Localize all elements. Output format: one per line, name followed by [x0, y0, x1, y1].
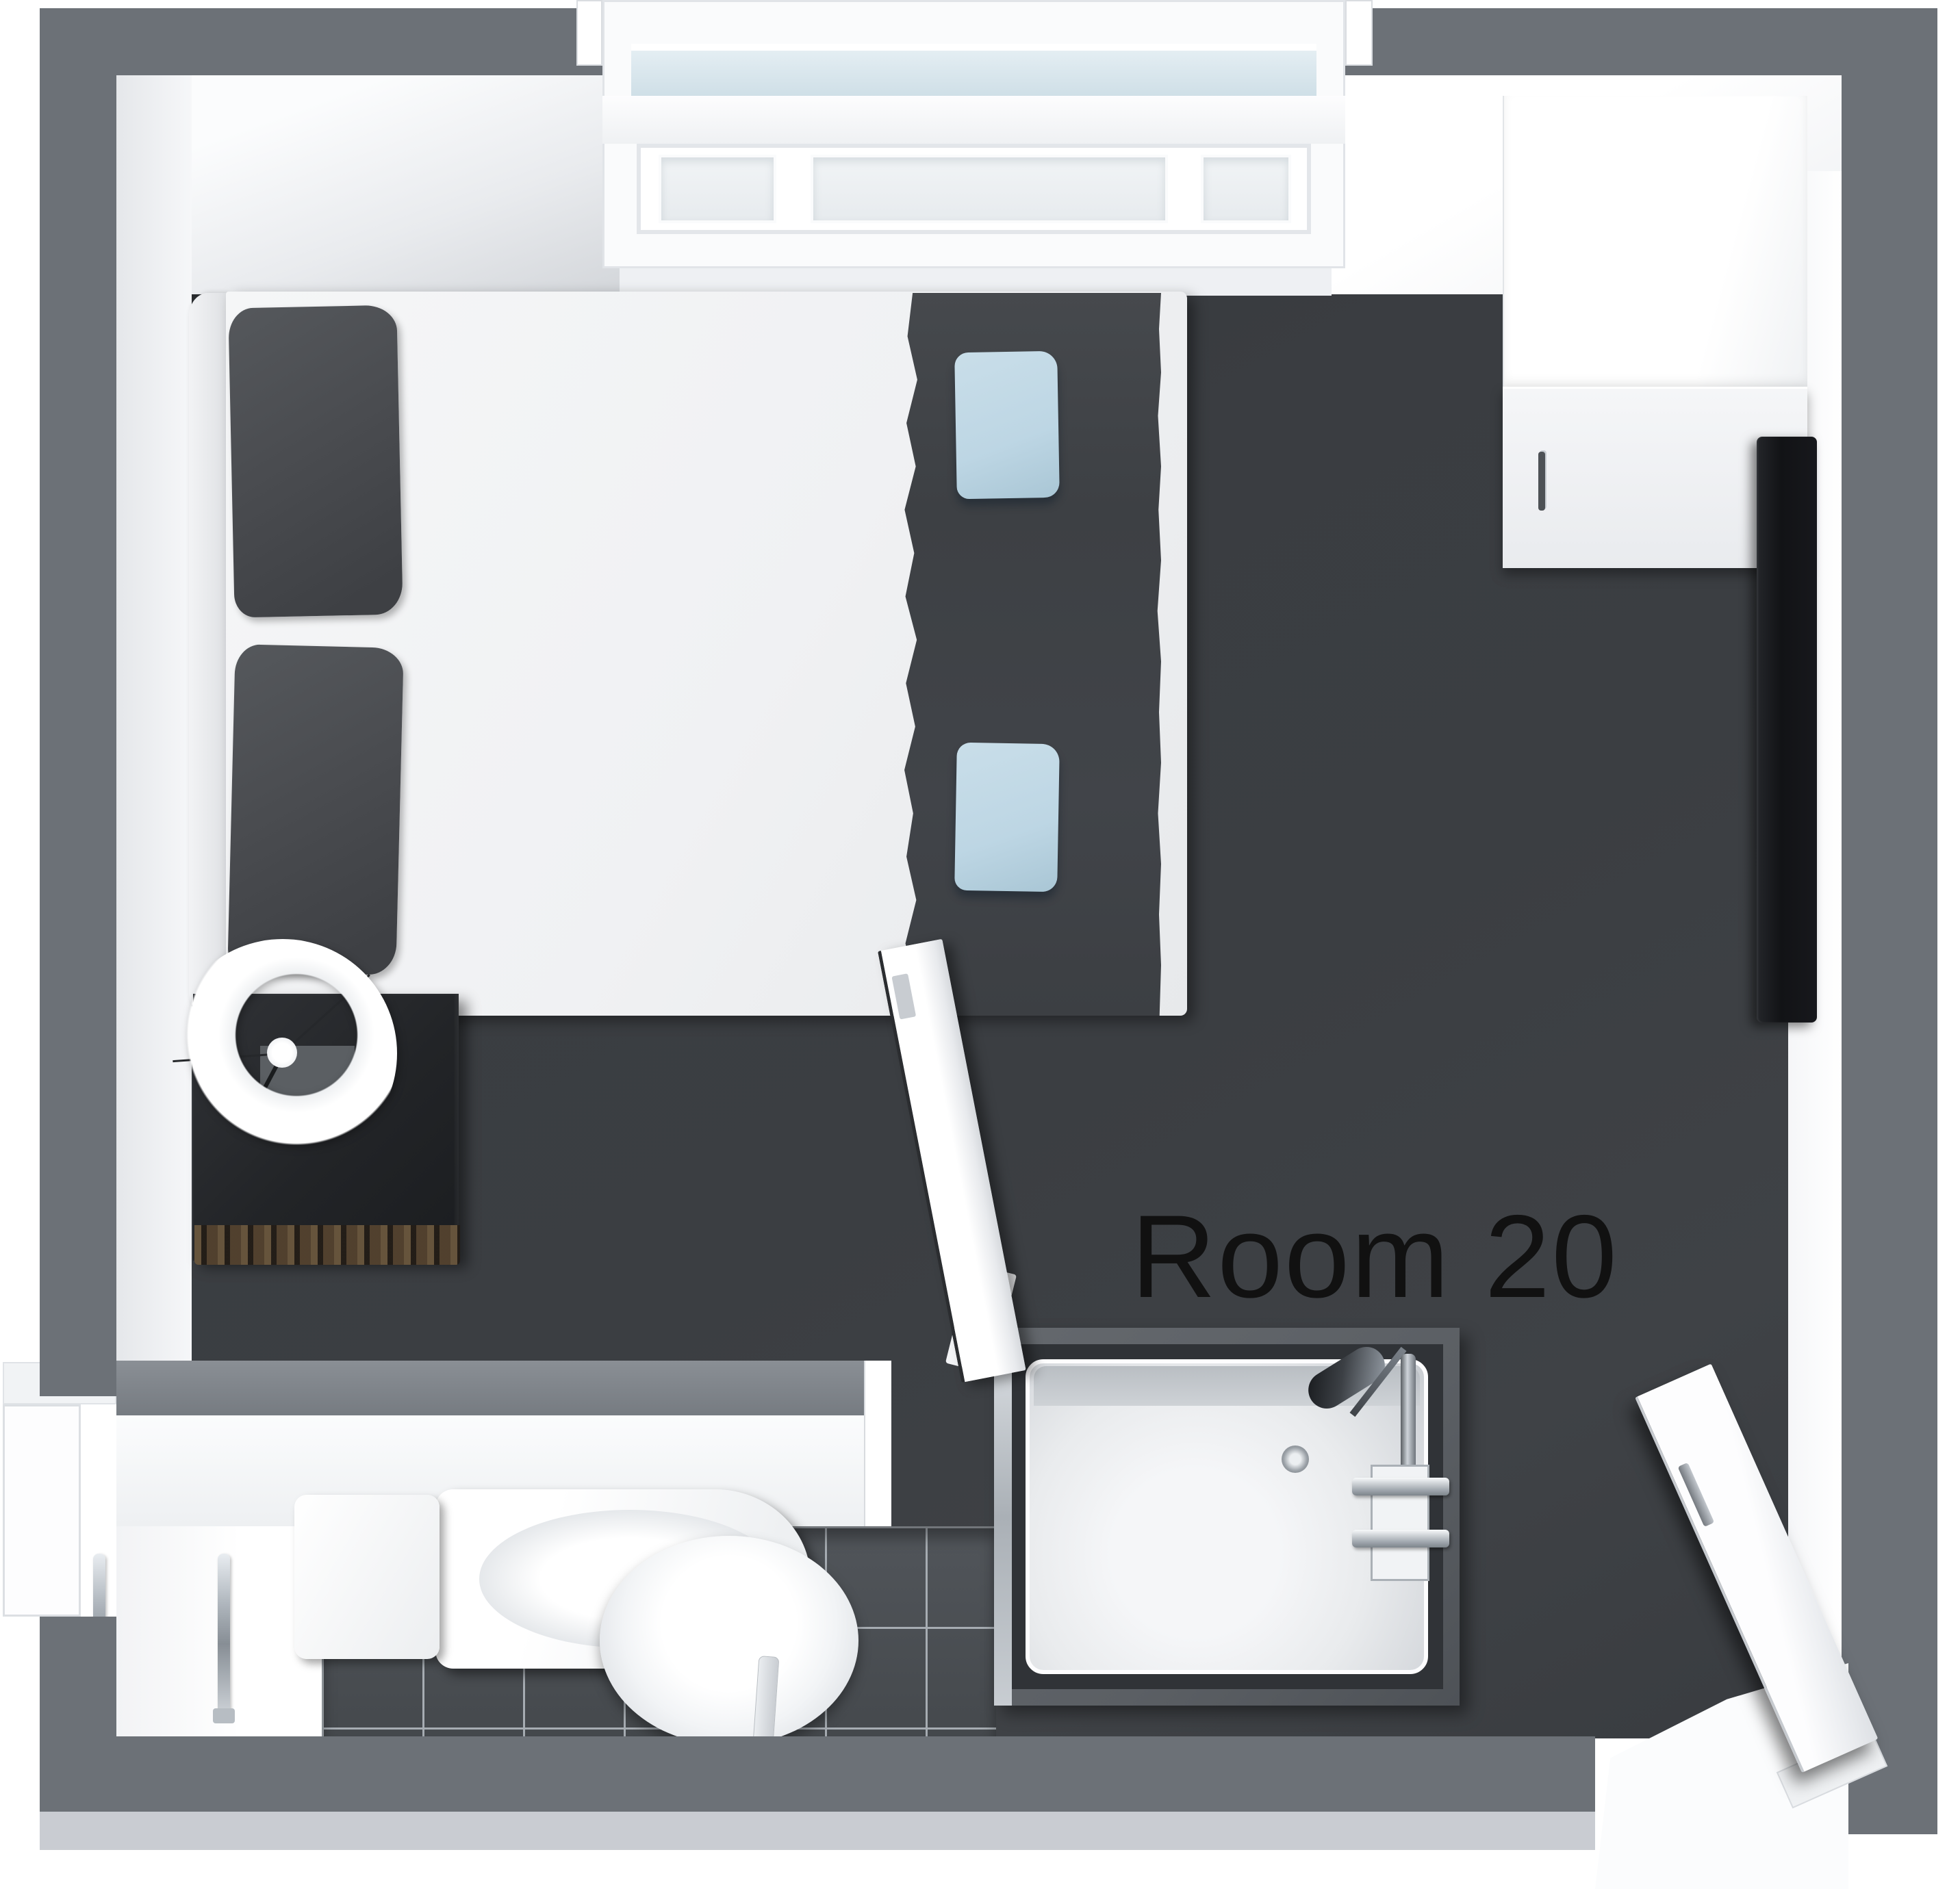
outer-wall-bottom	[40, 1736, 1595, 1812]
wall-face-top-left	[116, 74, 620, 294]
head-pillow	[227, 644, 404, 975]
toilet-cistern	[294, 1495, 440, 1659]
towel-rail	[218, 1554, 230, 1718]
window-glass	[631, 44, 1316, 96]
shower-control-panel	[1371, 1465, 1429, 1581]
room-label: Room 20	[1131, 1190, 1618, 1325]
window-inner-frame	[637, 144, 1311, 234]
bathroom-outer-cabinet	[3, 1404, 81, 1617]
washbasin	[600, 1536, 858, 1745]
shower-control-bar	[1352, 1530, 1449, 1547]
outer-wall-bottom-face	[40, 1812, 1595, 1850]
window-pane	[659, 155, 776, 223]
bed-headboard	[189, 293, 227, 1016]
nightstand-wood-base	[194, 1225, 460, 1265]
window-sill	[602, 96, 1345, 144]
outer-wall-left-lower	[40, 1617, 116, 1738]
head-pillow	[228, 305, 403, 617]
window-side-return	[1345, 0, 1373, 66]
bathroom-wall-top	[116, 1361, 864, 1415]
wall-face-under-window	[620, 264, 1332, 296]
bathroom-door-jamb	[864, 1361, 891, 1526]
outer-wall-right	[1842, 8, 1937, 1834]
tv-screen	[1757, 437, 1817, 1023]
shower-drain	[1282, 1445, 1309, 1473]
window-pane	[811, 155, 1168, 223]
bay-window	[602, 0, 1345, 268]
lamp-bulb	[267, 1038, 297, 1068]
floor-plan: Room 20	[0, 0, 1960, 1889]
accent-pillow	[954, 743, 1060, 892]
accent-pillow	[954, 351, 1060, 500]
window-side-return	[576, 0, 602, 66]
window-pane	[1201, 155, 1291, 223]
outer-wall-left	[40, 8, 116, 1396]
shower-tray	[1026, 1359, 1428, 1674]
wall-face-left	[116, 74, 192, 1396]
table-lamp	[168, 939, 397, 1168]
shower-control-bar	[1352, 1478, 1449, 1495]
bathroom-door-latch	[891, 973, 916, 1019]
wardrobe	[1503, 96, 1807, 387]
wardrobe-handle	[1538, 452, 1545, 511]
shower-glass-edge	[994, 1328, 1012, 1706]
